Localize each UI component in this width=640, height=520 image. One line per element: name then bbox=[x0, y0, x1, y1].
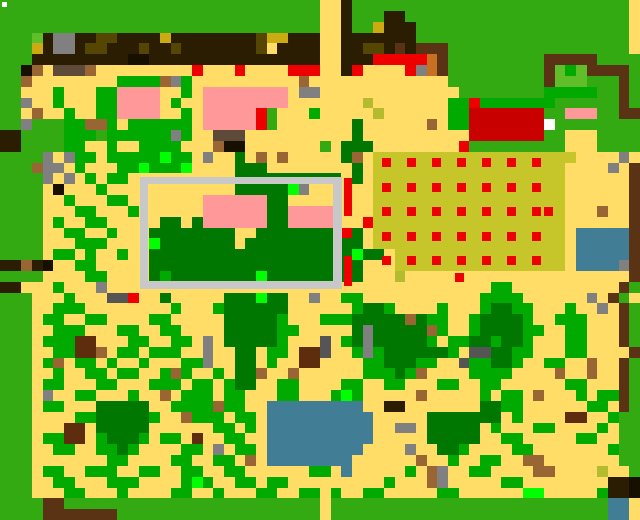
tile-sand bbox=[533, 336, 544, 347]
tile-vegetation bbox=[512, 293, 523, 303]
tile-vegetation bbox=[267, 347, 277, 358]
tile-sand bbox=[32, 76, 43, 87]
tile-grass bbox=[160, 22, 171, 33]
tile-tree-canopy bbox=[192, 249, 203, 260]
tile-vegetation bbox=[459, 119, 469, 130]
tile-rock bbox=[309, 87, 320, 98]
tile-dark-structure bbox=[192, 33, 203, 43]
tile-vegetation bbox=[75, 488, 85, 498]
tile-sand bbox=[43, 238, 53, 249]
tile-sand bbox=[459, 477, 469, 488]
tile-grass bbox=[629, 466, 640, 477]
tile-vegetation bbox=[427, 314, 437, 325]
tile-sand bbox=[587, 173, 597, 184]
tile-sand bbox=[363, 152, 373, 163]
tile-crop-field bbox=[491, 184, 501, 195]
tile-sand bbox=[128, 228, 139, 238]
tile-tree-canopy bbox=[245, 325, 256, 336]
tile-grass bbox=[629, 358, 640, 368]
tile-dark-structure bbox=[277, 43, 288, 54]
tile-pink-roof bbox=[235, 195, 245, 206]
tile-water bbox=[267, 444, 277, 455]
tile-tree-canopy bbox=[160, 249, 171, 260]
tile-tree-canopy bbox=[224, 303, 235, 314]
tile-vegetation bbox=[149, 119, 160, 130]
tile-tree-canopy bbox=[128, 433, 139, 444]
tile-grass bbox=[53, 130, 64, 141]
tile-dark-structure bbox=[213, 54, 224, 65]
tile-sand bbox=[608, 217, 619, 228]
tile-vegetation bbox=[448, 379, 459, 390]
tile-dark-structure bbox=[11, 141, 21, 152]
tile-sand bbox=[107, 271, 117, 282]
tile-sand bbox=[395, 477, 405, 488]
tile-grass bbox=[544, 0, 555, 11]
tile-water bbox=[288, 423, 299, 433]
tile-soil-patch bbox=[75, 336, 85, 347]
tile-sand bbox=[256, 423, 267, 433]
tile-sand bbox=[352, 76, 363, 87]
tile-crop-field bbox=[437, 217, 448, 228]
tile-sand bbox=[64, 379, 75, 390]
tile-sand bbox=[597, 412, 608, 423]
tile-tree-canopy bbox=[277, 184, 288, 195]
tile-sand bbox=[373, 412, 384, 423]
tile-sand bbox=[405, 488, 416, 498]
tile-pink-roof bbox=[149, 87, 160, 98]
tile-vegetation bbox=[405, 466, 416, 477]
tile-sand bbox=[288, 152, 299, 163]
tile-sand bbox=[128, 260, 139, 271]
tile-red-marker bbox=[256, 119, 267, 130]
tile-vegetation bbox=[107, 87, 117, 98]
crop-field-dots bbox=[457, 183, 466, 192]
tile-sand bbox=[384, 293, 395, 303]
tile-grass bbox=[0, 455, 11, 466]
tile-sand bbox=[331, 325, 341, 336]
tile-vegetation bbox=[523, 98, 533, 108]
tile-grass bbox=[533, 54, 544, 65]
tile-tree-canopy bbox=[352, 260, 363, 271]
tile-vegetation bbox=[75, 163, 85, 173]
tile-grass bbox=[32, 498, 43, 509]
tile-tree-canopy bbox=[235, 249, 245, 260]
tile-sand bbox=[437, 108, 448, 119]
tile-bright-plant bbox=[533, 488, 544, 498]
tile-grass bbox=[149, 11, 160, 22]
tile-sand bbox=[341, 477, 352, 488]
tile-soil-patch bbox=[64, 433, 75, 444]
tile-grass bbox=[373, 509, 384, 520]
tile-tree-canopy bbox=[267, 206, 277, 217]
tile-sand bbox=[437, 130, 448, 141]
tile-sand bbox=[416, 87, 427, 98]
tile-sand bbox=[75, 195, 85, 206]
tile-grass bbox=[512, 498, 523, 509]
tile-crop-field bbox=[491, 195, 501, 206]
tile-wood-wall bbox=[629, 238, 640, 249]
tile-water bbox=[587, 260, 597, 271]
tile-sand bbox=[597, 347, 608, 358]
tile-sand bbox=[608, 173, 619, 184]
tile-sand bbox=[149, 477, 160, 488]
tile-sand bbox=[523, 466, 533, 477]
tile-sand bbox=[565, 293, 576, 303]
tile-sand bbox=[32, 293, 43, 303]
tile-vegetation bbox=[64, 195, 75, 206]
red-strip-upper bbox=[344, 178, 352, 216]
tile-vegetation bbox=[64, 444, 75, 455]
tile-grass bbox=[0, 303, 11, 314]
tile-dark-structure bbox=[0, 141, 11, 152]
tile-vegetation bbox=[96, 466, 107, 477]
tile-sand bbox=[576, 401, 587, 412]
tile-tree-canopy bbox=[491, 347, 501, 358]
tile-sand bbox=[352, 455, 363, 466]
tile-sand bbox=[53, 152, 64, 163]
tile-red-roof bbox=[469, 108, 480, 119]
tile-taupe-rock bbox=[53, 65, 64, 76]
tile-sand bbox=[416, 477, 427, 488]
tile-sand bbox=[384, 119, 395, 130]
tile-black-brown bbox=[235, 141, 245, 152]
tile-vegetation bbox=[107, 141, 117, 152]
tile-sand bbox=[384, 455, 395, 466]
tile-pink-roof bbox=[565, 108, 576, 119]
tile-pink-roof bbox=[576, 108, 587, 119]
tile-grass bbox=[11, 509, 21, 520]
tile-tree-canopy bbox=[491, 412, 501, 423]
tile-sand bbox=[277, 119, 288, 130]
tile-vegetation bbox=[309, 488, 320, 498]
tile-sand bbox=[523, 423, 533, 433]
tile-vegetation bbox=[288, 379, 299, 390]
tile-grass bbox=[21, 22, 32, 33]
tile-sand bbox=[320, 130, 331, 141]
tile-red-roof bbox=[480, 130, 491, 141]
tile-crop-field bbox=[395, 249, 405, 260]
tile-sand bbox=[587, 347, 597, 358]
tile-rock bbox=[597, 303, 608, 314]
tile-vegetation bbox=[117, 152, 128, 163]
tile-sand bbox=[75, 444, 85, 455]
tile-sand bbox=[309, 314, 320, 325]
tile-sand bbox=[544, 325, 555, 336]
tile-vegetation bbox=[171, 98, 181, 108]
tile-sand bbox=[107, 163, 117, 173]
tile-water bbox=[320, 444, 331, 455]
tile-sand bbox=[544, 282, 555, 293]
tile-tree-canopy bbox=[384, 314, 395, 325]
tile-grass bbox=[565, 0, 576, 11]
tile-sand bbox=[64, 206, 75, 217]
tile-sand bbox=[533, 347, 544, 358]
tile-rock bbox=[43, 163, 53, 173]
tile-pink-roof bbox=[224, 195, 235, 206]
tile-grass bbox=[480, 76, 491, 87]
tile-taupe-rock bbox=[64, 65, 75, 76]
tile-sand bbox=[128, 379, 139, 390]
tile-sand bbox=[352, 206, 363, 217]
tile-vegetation bbox=[448, 347, 459, 358]
tile-crop-field bbox=[491, 173, 501, 184]
tile-bright-plant bbox=[149, 238, 160, 249]
tile-sand bbox=[437, 87, 448, 98]
tile-rock bbox=[203, 152, 213, 163]
tile-vegetation bbox=[213, 412, 224, 423]
tile-sand bbox=[192, 195, 203, 206]
tile-vegetation bbox=[43, 433, 53, 444]
tile-grass bbox=[181, 498, 192, 509]
tile-sand bbox=[448, 282, 459, 293]
tile-sand bbox=[43, 195, 53, 206]
tile-tree-canopy bbox=[107, 433, 117, 444]
tile-vegetation bbox=[448, 488, 459, 498]
tile-tree-canopy bbox=[469, 433, 480, 444]
tile-sand bbox=[597, 477, 608, 488]
tile-sand bbox=[363, 238, 373, 249]
tile-pink-roof bbox=[224, 108, 235, 119]
tile-dirt bbox=[533, 466, 544, 477]
tile-wood-wall bbox=[576, 54, 587, 65]
tile-sand bbox=[277, 65, 288, 76]
tile-rock bbox=[21, 98, 32, 108]
tile-sand bbox=[117, 119, 128, 130]
tile-sand bbox=[555, 293, 565, 303]
tile-sand bbox=[341, 87, 352, 98]
tile-vegetation bbox=[53, 249, 64, 260]
tile-vegetation bbox=[117, 76, 128, 87]
tile-grass bbox=[0, 358, 11, 368]
tile-sand bbox=[341, 108, 352, 119]
tile-grass bbox=[459, 65, 469, 76]
tile-grass bbox=[459, 509, 469, 520]
tile-sand bbox=[533, 282, 544, 293]
tile-pink-roof bbox=[256, 195, 267, 206]
tile-vegetation bbox=[491, 455, 501, 466]
tile-sand bbox=[32, 444, 43, 455]
tile-sand bbox=[341, 325, 352, 336]
tile-vegetation bbox=[85, 152, 96, 163]
tile-grass bbox=[427, 498, 437, 509]
tile-grass bbox=[0, 412, 11, 423]
tile-sand bbox=[587, 152, 597, 163]
tile-sand bbox=[363, 87, 373, 98]
tile-sand bbox=[544, 379, 555, 390]
tile-vegetation bbox=[75, 412, 85, 423]
tile-grass bbox=[117, 22, 128, 33]
tile-sand bbox=[587, 466, 597, 477]
tile-grass bbox=[32, 184, 43, 195]
tile-sand bbox=[309, 303, 320, 314]
tile-grass bbox=[576, 498, 587, 509]
tile-dark-structure bbox=[75, 54, 85, 65]
tile-sand bbox=[309, 76, 320, 87]
tile-crop-field bbox=[469, 163, 480, 173]
tile-vegetation bbox=[491, 336, 501, 347]
tile-tree-canopy bbox=[160, 293, 171, 303]
tile-sand bbox=[128, 455, 139, 466]
tile-sand bbox=[587, 455, 597, 466]
tile-sand bbox=[96, 141, 107, 152]
tile-sand bbox=[533, 401, 544, 412]
tile-grass bbox=[544, 130, 555, 141]
tile-vegetation bbox=[469, 358, 480, 368]
tile-vegetation bbox=[235, 477, 245, 488]
tile-vegetation bbox=[395, 379, 405, 390]
tile-dark-structure bbox=[0, 282, 11, 293]
tile-rock bbox=[53, 43, 64, 54]
farm-map[interactable] bbox=[0, 0, 640, 520]
tile-vegetation bbox=[96, 433, 107, 444]
tile-grass bbox=[203, 22, 213, 33]
tile-sand bbox=[448, 130, 459, 141]
tile-water bbox=[341, 455, 352, 466]
tile-sand bbox=[405, 130, 416, 141]
tile-dark-structure bbox=[149, 54, 160, 65]
tile-sand bbox=[299, 336, 309, 347]
tile-sand bbox=[619, 163, 629, 173]
tile-dark-structure bbox=[0, 260, 11, 271]
tile-grass bbox=[0, 509, 11, 520]
tile-vegetation bbox=[171, 119, 181, 130]
tile-sand bbox=[149, 65, 160, 76]
tile-sand bbox=[160, 195, 171, 206]
tile-sand bbox=[629, 498, 640, 509]
tile-sand bbox=[309, 477, 320, 488]
tile-grass bbox=[629, 130, 640, 141]
tile-crop-field bbox=[491, 228, 501, 238]
tile-grass bbox=[501, 33, 512, 43]
tile-grass bbox=[11, 444, 21, 455]
tile-grass bbox=[32, 0, 43, 11]
tile-sand bbox=[427, 87, 437, 98]
tile-dirt bbox=[32, 65, 43, 76]
tile-sand bbox=[117, 271, 128, 282]
tile-tree-canopy bbox=[107, 401, 117, 412]
tile-tree-canopy bbox=[469, 412, 480, 423]
tile-sand bbox=[395, 303, 405, 314]
tile-grass bbox=[512, 141, 523, 152]
tile-sand bbox=[416, 271, 427, 282]
tile-grass bbox=[619, 455, 629, 466]
tile-pink-roof bbox=[224, 206, 235, 217]
tile-pink-roof bbox=[277, 98, 288, 108]
tile-sand bbox=[85, 184, 96, 195]
tile-dark-structure bbox=[309, 54, 320, 65]
tile-grass bbox=[480, 43, 491, 54]
crop-field-dots bbox=[532, 207, 541, 216]
tile-sand bbox=[320, 33, 331, 43]
tile-sand bbox=[523, 401, 533, 412]
tile-grass bbox=[597, 22, 608, 33]
tile-grass bbox=[501, 54, 512, 65]
tile-grass bbox=[0, 54, 11, 65]
paddock-fence-right bbox=[333, 177, 342, 289]
tile-grass bbox=[469, 141, 480, 152]
tile-dirt bbox=[96, 119, 107, 130]
tile-sand bbox=[320, 163, 331, 173]
tile-grass bbox=[53, 119, 64, 130]
tile-dirt bbox=[213, 141, 224, 152]
tile-sand bbox=[299, 98, 309, 108]
tile-sand bbox=[53, 173, 64, 184]
tile-water bbox=[331, 423, 341, 433]
tile-sand bbox=[64, 184, 75, 195]
tile-sand bbox=[512, 488, 523, 498]
tile-wood-wall bbox=[619, 108, 629, 119]
tile-grass bbox=[96, 22, 107, 33]
tile-rock bbox=[96, 282, 107, 293]
tile-grass bbox=[11, 33, 21, 43]
tile-sand bbox=[107, 260, 117, 271]
tile-vegetation bbox=[149, 466, 160, 477]
tile-vegetation bbox=[512, 401, 523, 412]
tile-sand bbox=[203, 423, 213, 433]
tile-grass bbox=[597, 141, 608, 152]
tile-sand bbox=[85, 87, 96, 98]
tile-sand bbox=[277, 76, 288, 87]
tile-sand bbox=[352, 466, 363, 477]
tile-sand bbox=[160, 423, 171, 433]
tile-sand bbox=[107, 76, 117, 87]
tile-vegetation bbox=[331, 314, 341, 325]
tile-sand bbox=[160, 87, 171, 98]
tile-sand bbox=[128, 488, 139, 498]
tile-sand bbox=[149, 325, 160, 336]
tile-water bbox=[331, 433, 341, 444]
tile-black-brown bbox=[53, 184, 64, 195]
crop-field-dots bbox=[432, 256, 441, 265]
tile-tree-canopy bbox=[416, 325, 427, 336]
tile-grass bbox=[256, 11, 267, 22]
tile-sand bbox=[75, 87, 85, 98]
tile-grass bbox=[619, 22, 629, 33]
tile-vegetation bbox=[171, 141, 181, 152]
tile-sand bbox=[309, 368, 320, 379]
tile-vegetation bbox=[437, 314, 448, 325]
tile-grass bbox=[352, 11, 363, 22]
tile-sand bbox=[245, 65, 256, 76]
tile-dirt bbox=[416, 455, 427, 466]
tile-soil-patch bbox=[565, 412, 576, 423]
tile-sand bbox=[96, 152, 107, 163]
tile-vegetation bbox=[565, 303, 576, 314]
tile-grass bbox=[192, 498, 203, 509]
tile-tree-canopy bbox=[267, 217, 277, 228]
tile-vegetation bbox=[288, 390, 299, 401]
tile-grass bbox=[11, 11, 21, 22]
tile-sand bbox=[64, 271, 75, 282]
tile-water bbox=[320, 433, 331, 444]
tile-tree-canopy bbox=[437, 444, 448, 455]
tile-water bbox=[309, 412, 320, 423]
tile-tree-canopy bbox=[139, 412, 149, 423]
tile-sand bbox=[597, 358, 608, 368]
tile-grass bbox=[21, 466, 32, 477]
tile-red-roof bbox=[501, 130, 512, 141]
tile-tree-canopy bbox=[267, 314, 277, 325]
tile-vegetation bbox=[245, 444, 256, 455]
tile-tree-canopy bbox=[277, 293, 288, 303]
tile-grass bbox=[608, 76, 619, 87]
crop-field-dots bbox=[382, 256, 391, 265]
tile-vegetation bbox=[107, 379, 117, 390]
tile-sand bbox=[331, 87, 341, 98]
tile-grass bbox=[480, 54, 491, 65]
tile-grass bbox=[459, 87, 469, 98]
tile-crop-field bbox=[395, 260, 405, 271]
